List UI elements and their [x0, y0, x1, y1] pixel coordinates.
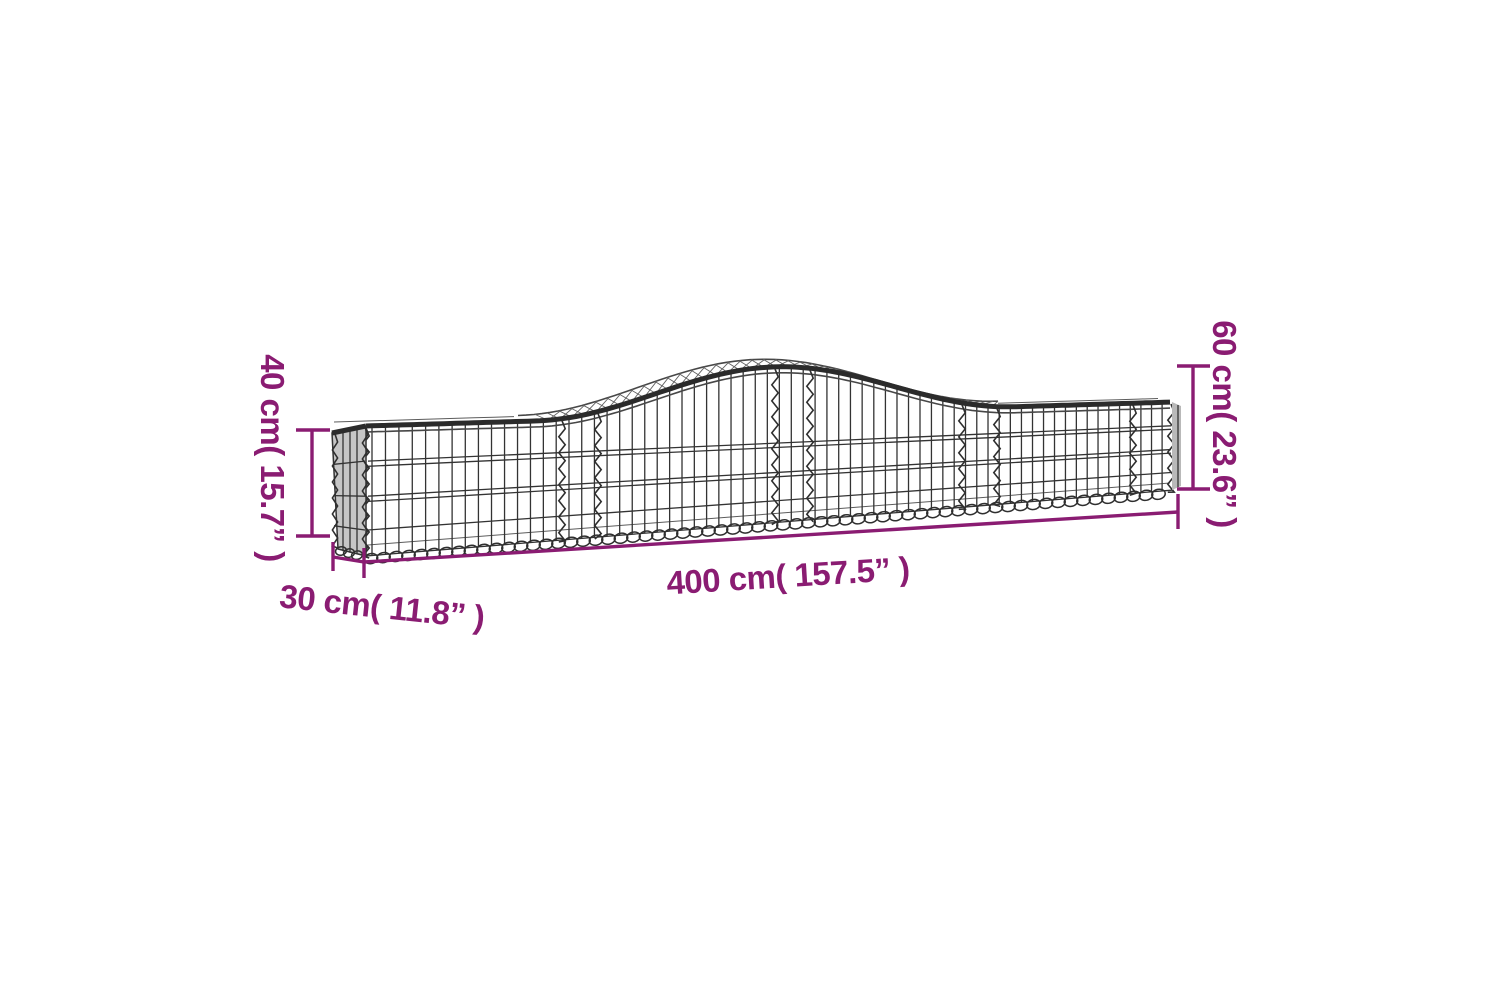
basket-vertical-wires	[372, 368, 1162, 556]
dimension-label-height-right: 60 cm( 23.6” )	[1205, 320, 1243, 528]
dimension-lines	[296, 366, 1210, 578]
basket-top-band	[366, 367, 1170, 432]
basket-back-edges	[334, 359, 1170, 545]
dimension-label-height-left: 40 cm( 15.7” )	[253, 354, 291, 562]
basket-joint-spirals	[363, 369, 1174, 558]
product-dimension-diagram: 40 cm( 15.7” ) 60 cm( 23.6” ) 400 cm( 15…	[0, 0, 1500, 1000]
basket-left-end-panel	[332, 426, 368, 560]
dim-line-height-left	[296, 430, 330, 536]
gabion-basket-illustration	[0, 0, 1500, 1000]
basket-right-end-panel	[1172, 402, 1181, 490]
dim-line-length	[364, 494, 1178, 562]
